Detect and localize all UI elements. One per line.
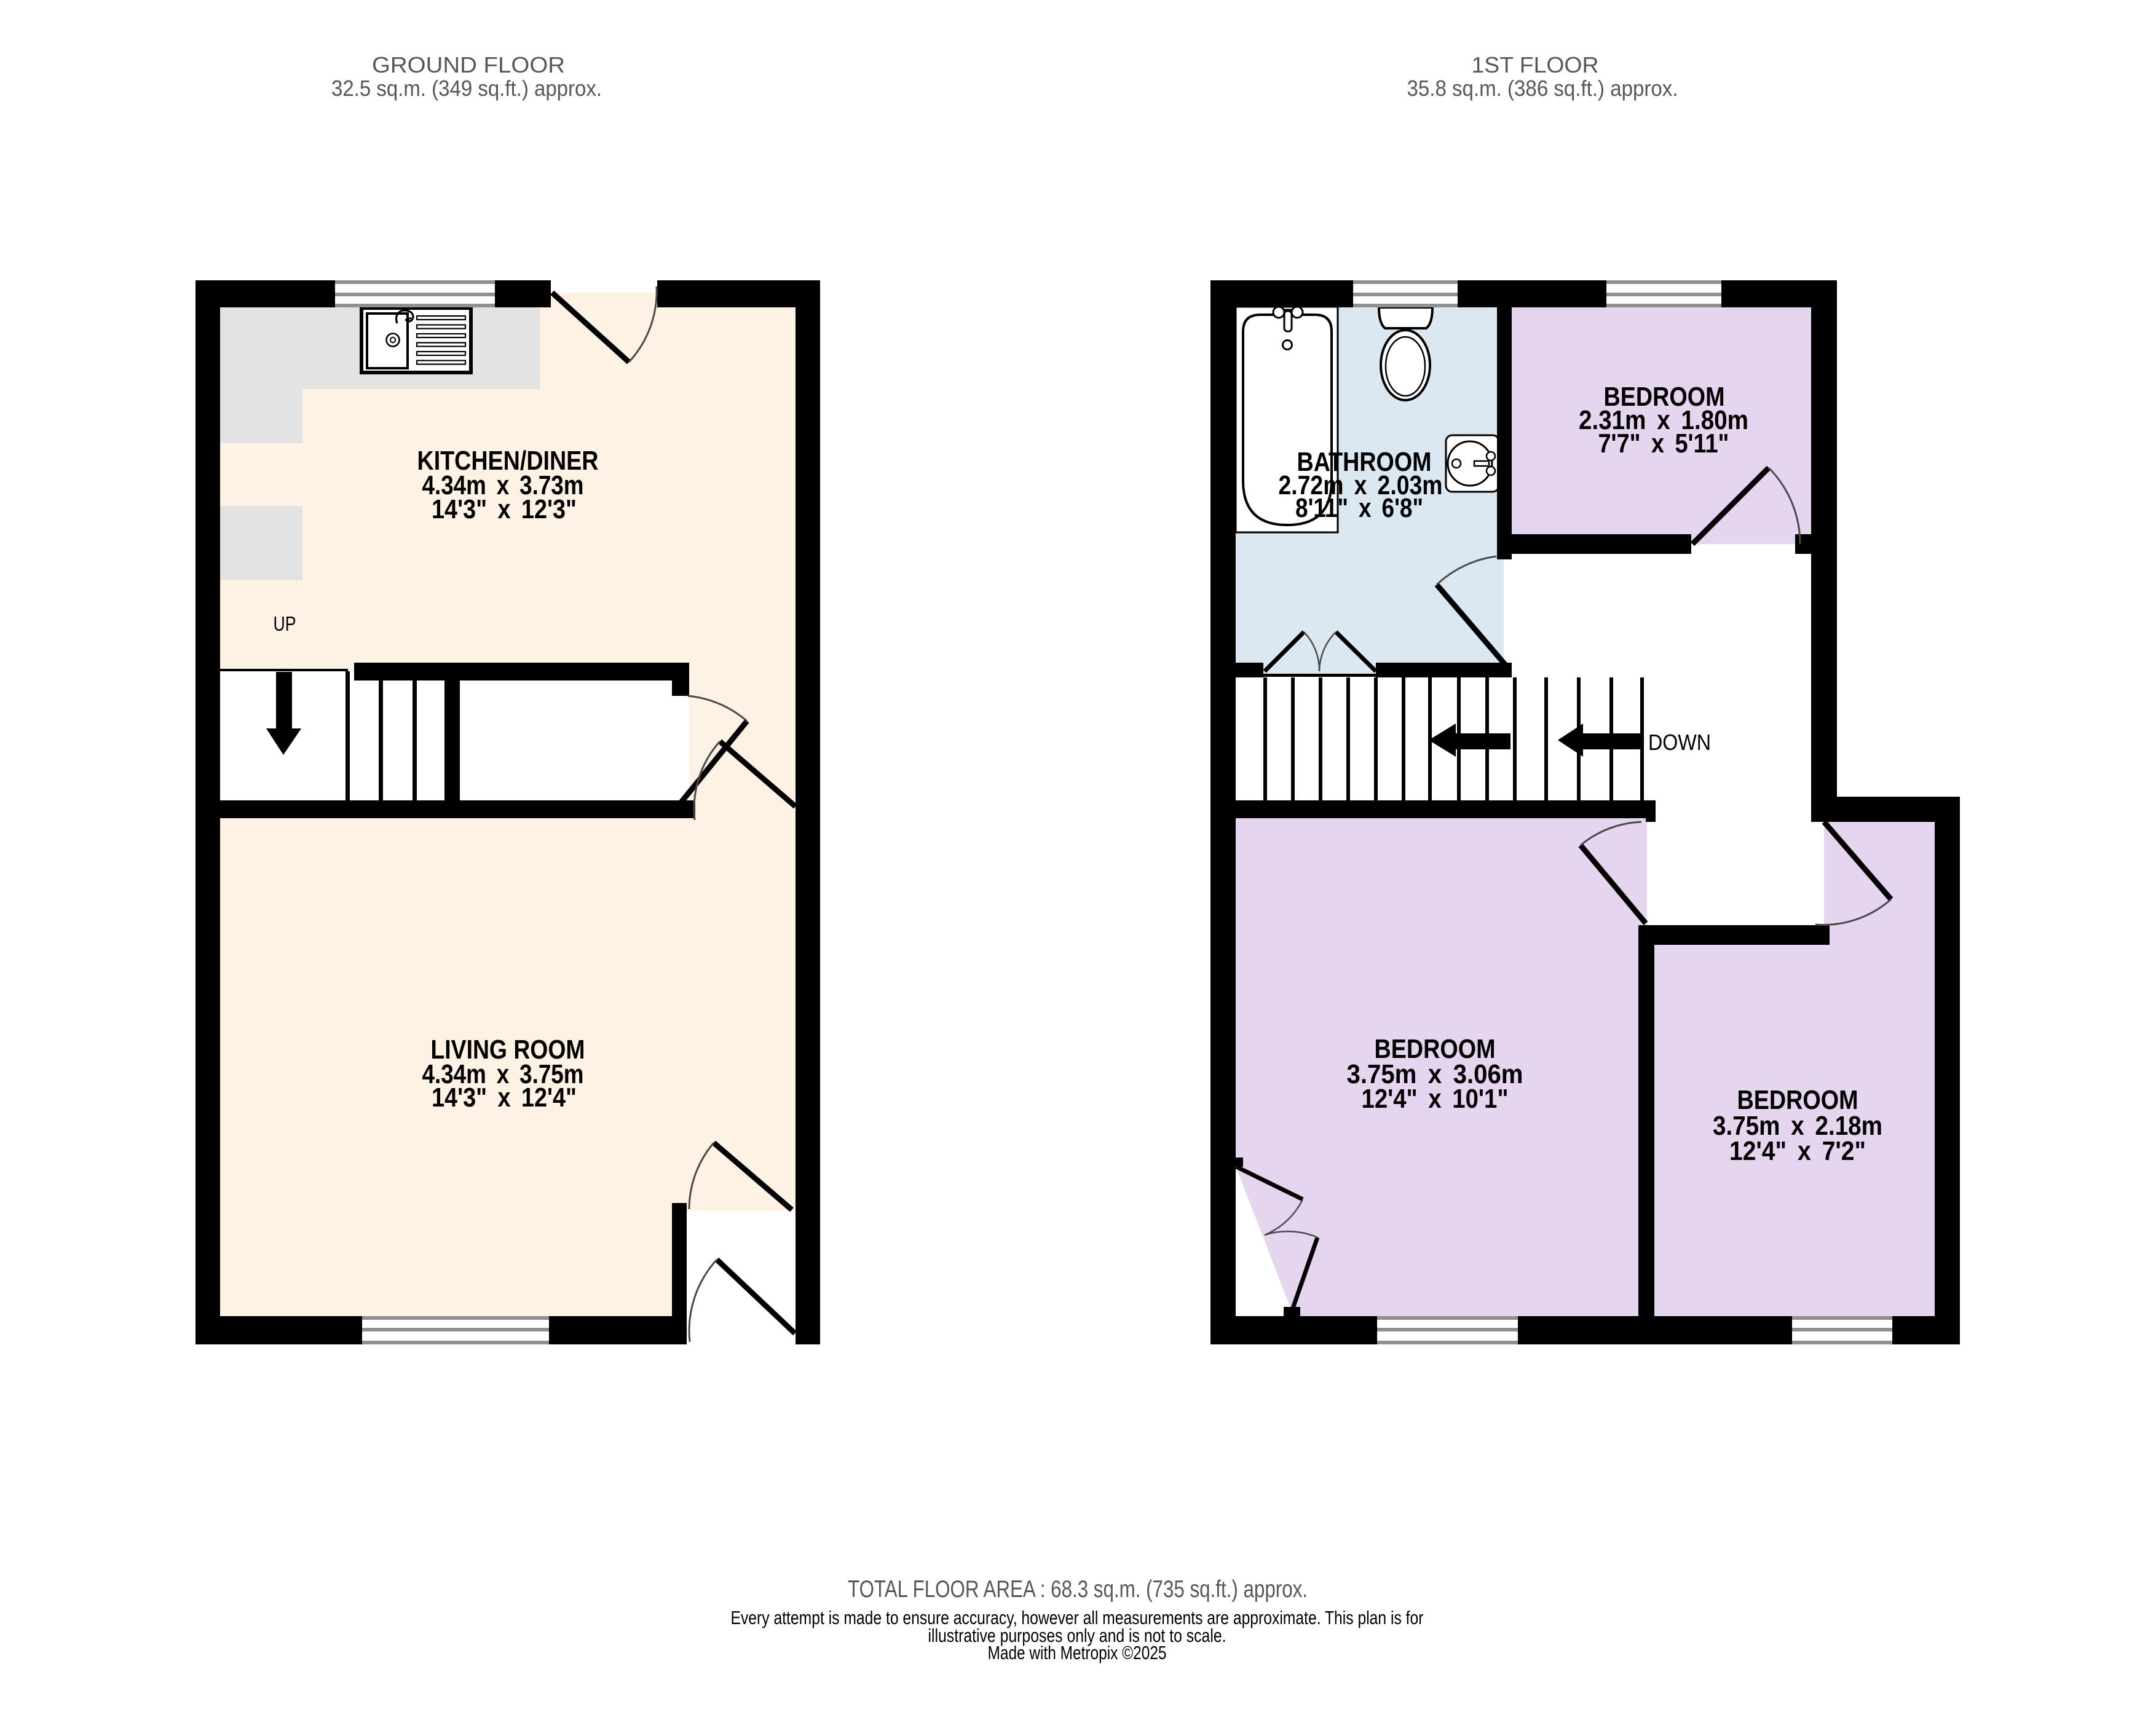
svg-text:TOTAL FLOOR AREA : 68.3 sq.m.: TOTAL FLOOR AREA : 68.3 sq.m. (735 sq.ft…: [848, 1576, 1308, 1603]
svg-text:12'4" x 10'1": 12'4" x 10'1": [1362, 1084, 1509, 1114]
svg-text:35.8 sq.m. (386 sq.ft.) approx: 35.8 sq.m. (386 sq.ft.) approx.: [1407, 76, 1678, 101]
svg-text:UP: UP: [274, 613, 296, 636]
svg-text:DOWN: DOWN: [1648, 730, 1711, 755]
svg-text:Made with Metropix ©2025: Made with Metropix ©2025: [988, 1642, 1167, 1663]
svg-text:7'7" x 5'11": 7'7" x 5'11": [1598, 428, 1729, 459]
svg-text:GROUND FLOOR: GROUND FLOOR: [372, 52, 565, 77]
svg-text:14'3" x 12'3": 14'3" x 12'3": [432, 494, 577, 524]
svg-text:14'3" x 12'4": 14'3" x 12'4": [432, 1083, 577, 1113]
svg-text:1ST FLOOR: 1ST FLOOR: [1472, 52, 1599, 77]
svg-text:8'11" x 6'8": 8'11" x 6'8": [1295, 493, 1423, 523]
svg-text:12'4" x 7'2": 12'4" x 7'2": [1729, 1136, 1866, 1166]
svg-text:32.5 sq.m. (349 sq.ft.) approx: 32.5 sq.m. (349 sq.ft.) approx.: [331, 76, 602, 101]
